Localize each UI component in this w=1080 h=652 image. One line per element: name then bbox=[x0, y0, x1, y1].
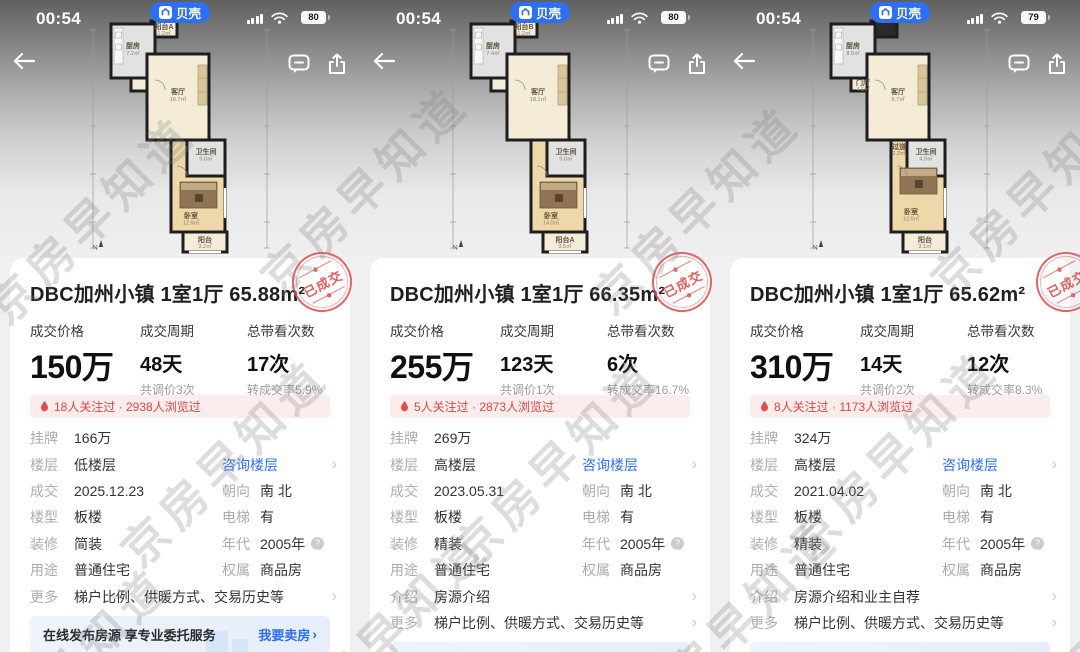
viewing-count: 6次 bbox=[607, 348, 690, 377]
svg-text:12.0㎡: 12.0㎡ bbox=[903, 215, 920, 223]
stats-row: 成交价格150万 成交周期48天共调价3次 总带看次数17次转成交率5.9% bbox=[30, 320, 330, 386]
detail-row-deal-date: 成交2025.12.23朝向南 北 bbox=[30, 478, 330, 504]
clock: 00:54 bbox=[396, 9, 441, 29]
svg-text:客厅: 客厅 bbox=[530, 87, 545, 96]
svg-text:12.9㎡: 12.9㎡ bbox=[183, 219, 200, 227]
svg-text:阳台: 阳台 bbox=[918, 235, 932, 244]
svg-text:厨房: 厨房 bbox=[126, 41, 140, 50]
detail-row-listing-price: 挂牌166万 bbox=[30, 425, 330, 451]
svg-text:阳台B: 阳台B bbox=[514, 22, 533, 31]
message-button[interactable] bbox=[288, 54, 310, 74]
detail-row-listing-price: 挂牌269万 bbox=[390, 425, 690, 451]
svg-text:卫生间: 卫生间 bbox=[196, 147, 217, 156]
beike-logo-icon bbox=[519, 6, 532, 19]
clock: 00:54 bbox=[756, 9, 801, 29]
detail-row-floor: 楼层高楼层咨询楼层 bbox=[750, 451, 1050, 477]
floorplan-image: 阳台B 1.2㎡ 厨房 7.4㎡ 客厅 18.1㎡ 卫生间 5.0㎡ 卧室 14… bbox=[445, 18, 635, 254]
attention-text: 8人关注过 · 1173人浏览过 bbox=[774, 398, 913, 415]
svg-text:阳台: 阳台 bbox=[198, 235, 212, 244]
flame-icon bbox=[400, 401, 409, 412]
compass-north-icon: N bbox=[813, 240, 823, 252]
svg-text:7.2㎡: 7.2㎡ bbox=[126, 49, 140, 57]
detail-row-building-type: 楼型板楼电梯有 bbox=[30, 504, 330, 530]
chevron-right-icon bbox=[692, 457, 697, 473]
compass-north-icon: N bbox=[93, 240, 103, 252]
svg-text:厨房: 厨房 bbox=[846, 41, 860, 50]
chevron-right-icon bbox=[1052, 615, 1057, 631]
attention-banner: 18人关注过 · 2938人浏览过 bbox=[30, 395, 330, 418]
listing-card: 已成交 DBC加州小镇 1室1厅 66.35m² 成交价格255万 成交周期12… bbox=[370, 258, 710, 652]
viewing-count: 17次 bbox=[247, 348, 330, 377]
detail-row-building-type: 楼型板楼电梯有 bbox=[750, 504, 1050, 530]
phone-screenshot-3: 厨房 8.5㎡ 客厅 9.7㎡ 卫生间 4.9㎡ 卧室 12.0㎡ 阳台 3.1… bbox=[720, 0, 1080, 652]
svg-text:1.2㎡: 1.2㎡ bbox=[517, 29, 531, 37]
cellular-signal-icon bbox=[967, 14, 984, 24]
beike-logo-icon bbox=[159, 6, 172, 19]
battery-icon: 79 bbox=[1021, 11, 1046, 24]
message-button[interactable] bbox=[648, 54, 670, 74]
svg-text:16.7㎡: 16.7㎡ bbox=[170, 95, 187, 103]
chevron-right-icon bbox=[332, 589, 337, 605]
stat-label: 总带看次数 bbox=[607, 320, 690, 340]
deal-price: 310万 bbox=[750, 342, 860, 388]
svg-text:卧室: 卧室 bbox=[184, 211, 198, 220]
floorplan-background: 阳台A 1.2㎡ 厨房 7.2㎡ 客厅 16.7㎡ 卫生间 5.0㎡ 卧室 12… bbox=[0, 0, 360, 260]
svg-text:N: N bbox=[453, 245, 458, 252]
sell-house-banner[interactable]: 在线发布房源 享专业委托服务 我要卖房 bbox=[30, 616, 330, 652]
wifi-icon bbox=[271, 12, 288, 24]
detail-row-building-type: 楼型板楼电梯有 bbox=[390, 504, 690, 530]
detail-row-usage: 用途普通住宅权属商品房 bbox=[750, 557, 1050, 583]
consult-floor-link[interactable]: 咨询楼层 bbox=[582, 455, 638, 475]
svg-text:14.0㎡: 14.0㎡ bbox=[543, 219, 560, 227]
chevron-right-icon bbox=[312, 626, 317, 642]
detail-row-deal-date: 成交2021.04.02朝向南 北 bbox=[750, 478, 1050, 504]
wifi-icon bbox=[991, 12, 1008, 24]
detail-table: 挂牌269万 楼层高楼层咨询楼层 成交2023.05.31朝向南 北 楼型板楼电… bbox=[390, 425, 690, 636]
flame-icon bbox=[40, 401, 49, 412]
svg-text:过道: 过道 bbox=[892, 142, 906, 151]
svg-text:3.1㎡: 3.1㎡ bbox=[918, 242, 932, 250]
share-button[interactable] bbox=[1047, 53, 1067, 75]
detail-row-more[interactable]: 更多梯户比例、供暖方式、交易历史等 bbox=[750, 610, 1050, 636]
svg-text:2.3㎡: 2.3㎡ bbox=[892, 149, 906, 157]
svg-text:阳台A: 阳台A bbox=[555, 235, 574, 244]
stats-row: 成交价格255万 成交周期123天共调价1次 总带看次数6次转成交率16.7% bbox=[390, 320, 690, 386]
detail-row-usage: 用途普通住宅权属商品房 bbox=[30, 557, 330, 583]
wifi-icon bbox=[631, 12, 648, 24]
stat-note: 转成交率8.3% bbox=[967, 381, 1050, 398]
stat-label: 成交价格 bbox=[390, 320, 500, 340]
svg-text:18.1㎡: 18.1㎡ bbox=[530, 95, 547, 103]
attention-text: 5人关注过 · 2873人浏览过 bbox=[414, 398, 554, 415]
share-button[interactable] bbox=[687, 53, 707, 75]
beike-badge-label: 贝壳 bbox=[896, 3, 921, 22]
stat-note: 转成交率16.7% bbox=[607, 381, 690, 398]
stat-note: 共调价1次 bbox=[500, 381, 607, 398]
deal-cycle: 123天 bbox=[500, 348, 607, 377]
attention-banner: 5人关注过 · 2873人浏览过 bbox=[390, 395, 690, 418]
svg-text:门厅: 门厅 bbox=[856, 78, 870, 87]
stat-label: 成交价格 bbox=[750, 320, 860, 340]
listing-title: DBC加州小镇 1室1厅 66.35m² bbox=[390, 278, 690, 307]
listing-card: 已成交 DBC加州小镇 1室1厅 65.88m² 成交价格150万 成交周期48… bbox=[10, 258, 350, 652]
chevron-right-icon bbox=[1052, 457, 1057, 473]
floorplan-background: 阳台B 1.2㎡ 厨房 7.4㎡ 客厅 18.1㎡ 卫生间 5.0㎡ 卧室 14… bbox=[360, 0, 720, 260]
chevron-right-icon bbox=[692, 615, 697, 631]
cellular-signal-icon bbox=[247, 14, 264, 24]
stat-note: 共调价2次 bbox=[860, 381, 967, 398]
back-button[interactable] bbox=[733, 52, 755, 70]
viewing-count: 12次 bbox=[967, 348, 1050, 377]
building-illustration bbox=[232, 639, 248, 652]
beike-badge-label: 贝壳 bbox=[176, 3, 201, 22]
detail-row-decoration: 装修简装年代2005年 bbox=[30, 531, 330, 557]
stat-label: 总带看次数 bbox=[247, 320, 330, 340]
stat-label: 成交周期 bbox=[860, 320, 967, 340]
svg-text:1.2㎡: 1.2㎡ bbox=[157, 29, 171, 37]
svg-text:卧室: 卧室 bbox=[904, 207, 918, 216]
svg-text:卧室: 卧室 bbox=[544, 211, 558, 220]
question-mark-icon[interactable] bbox=[311, 537, 324, 550]
consult-floor-link[interactable]: 咨询楼层 bbox=[942, 455, 998, 475]
phone-screenshot-1: 阳台A 1.2㎡ 厨房 7.2㎡ 客厅 16.7㎡ 卫生间 5.0㎡ 卧室 12… bbox=[0, 0, 360, 652]
detail-row-deal-date: 成交2023.05.31朝向南 北 bbox=[390, 478, 690, 504]
svg-text:卫生间: 卫生间 bbox=[916, 147, 937, 156]
svg-text:N: N bbox=[813, 245, 818, 252]
detail-row-intro[interactable]: 介绍房源介绍 bbox=[390, 583, 690, 609]
svg-text:阳台A: 阳台A bbox=[154, 22, 173, 31]
svg-text:3.5㎡: 3.5㎡ bbox=[558, 242, 572, 250]
flame-icon bbox=[760, 401, 769, 412]
beike-app-badge[interactable]: 贝壳 bbox=[150, 2, 210, 23]
battery-icon: 80 bbox=[301, 11, 326, 24]
detail-row-more[interactable]: 更多梯户比例、供暖方式、交易历史等 bbox=[30, 583, 330, 609]
question-mark-icon[interactable] bbox=[1031, 537, 1044, 550]
listing-card: 已成交 DBC加州小镇 1室1厅 65.62m² 成交价格310万 成交周期14… bbox=[730, 258, 1070, 652]
stat-label: 成交价格 bbox=[30, 320, 140, 340]
chevron-right-icon bbox=[332, 457, 337, 473]
svg-text:厨房: 厨房 bbox=[486, 41, 500, 50]
svg-text:5.0㎡: 5.0㎡ bbox=[199, 155, 213, 163]
floorplan-image: 阳台A 1.2㎡ 厨房 7.2㎡ 客厅 16.7㎡ 卫生间 5.0㎡ 卧室 12… bbox=[85, 18, 275, 254]
svg-text:3.2㎡: 3.2㎡ bbox=[198, 242, 212, 250]
detail-row-floor: 楼层高楼层咨询楼层 bbox=[390, 451, 690, 477]
detail-row-listing-price: 挂牌324万 bbox=[750, 425, 1050, 451]
beike-badge-label: 贝壳 bbox=[536, 3, 561, 22]
cellular-signal-icon bbox=[607, 14, 624, 24]
attention-banner: 8人关注过 · 1173人浏览过 bbox=[750, 395, 1050, 418]
beike-app-badge[interactable]: 贝壳 bbox=[510, 2, 570, 23]
sell-house-banner[interactable]: 在线发布房源 享专业委托服务 我要卖房 bbox=[390, 642, 690, 652]
floorplan-background: 厨房 8.5㎡ 客厅 9.7㎡ 卫生间 4.9㎡ 卧室 12.0㎡ 阳台 3.1… bbox=[720, 0, 1080, 260]
svg-text:5.0㎡: 5.0㎡ bbox=[559, 155, 573, 163]
stats-row: 成交价格310万 成交周期14天共调价2次 总带看次数12次转成交率8.3% bbox=[750, 320, 1050, 386]
listing-title: DBC加州小镇 1室1厅 65.62m² bbox=[750, 278, 1050, 307]
detail-table: 挂牌324万 楼层高楼层咨询楼层 成交2021.04.02朝向南 北 楼型板楼电… bbox=[750, 425, 1050, 636]
sell-house-link[interactable]: 我要卖房 bbox=[258, 625, 310, 644]
svg-text:卫生间: 卫生间 bbox=[556, 147, 577, 156]
detail-row-usage: 用途普通住宅权属商品房 bbox=[390, 557, 690, 583]
back-button[interactable] bbox=[373, 52, 395, 70]
svg-text:9.7㎡: 9.7㎡ bbox=[891, 95, 905, 103]
listing-title: DBC加州小镇 1室1厅 65.88m² bbox=[30, 278, 330, 307]
back-button[interactable] bbox=[13, 52, 35, 70]
compass-north-icon: N bbox=[453, 240, 463, 252]
beike-logo-icon bbox=[879, 6, 892, 19]
deal-cycle: 14天 bbox=[860, 348, 967, 377]
svg-text:客厅: 客厅 bbox=[170, 87, 185, 96]
beike-app-badge[interactable]: 贝壳 bbox=[870, 2, 930, 23]
stat-label: 成交周期 bbox=[500, 320, 607, 340]
svg-text:N: N bbox=[93, 245, 98, 252]
chevron-right-icon bbox=[692, 589, 697, 605]
stat-note: 共调价3次 bbox=[140, 381, 247, 398]
clock: 00:54 bbox=[36, 9, 81, 29]
chevron-right-icon bbox=[1052, 589, 1057, 605]
floorplan-image: 厨房 8.5㎡ 客厅 9.7㎡ 卫生间 4.9㎡ 卧室 12.0㎡ 阳台 3.1… bbox=[805, 18, 995, 254]
battery-icon: 80 bbox=[661, 11, 686, 24]
sell-house-banner[interactable]: 在线发布房源 享专业委托服务 我要卖房 bbox=[750, 642, 1050, 652]
deal-cycle: 48天 bbox=[140, 348, 247, 377]
svg-text:4.9㎡: 4.9㎡ bbox=[919, 155, 933, 163]
share-button[interactable] bbox=[327, 53, 347, 75]
deal-price: 150万 bbox=[30, 342, 140, 388]
message-button[interactable] bbox=[1008, 54, 1030, 74]
detail-row-intro[interactable]: 介绍房源介绍和业主自荐 bbox=[750, 583, 1050, 609]
svg-text:8.5㎡: 8.5㎡ bbox=[846, 49, 860, 57]
phone-screenshot-2: 阳台B 1.2㎡ 厨房 7.4㎡ 客厅 18.1㎡ 卫生间 5.0㎡ 卧室 14… bbox=[360, 0, 720, 652]
detail-row-floor: 楼层低楼层咨询楼层 bbox=[30, 451, 330, 477]
stat-note: 转成交率5.9% bbox=[247, 381, 330, 398]
svg-text:7.4㎡: 7.4㎡ bbox=[486, 49, 500, 57]
consult-floor-link[interactable]: 咨询楼层 bbox=[222, 455, 278, 475]
detail-row-decoration: 装修精装年代2005年 bbox=[750, 531, 1050, 557]
stat-label: 总带看次数 bbox=[967, 320, 1050, 340]
deal-price: 255万 bbox=[390, 342, 500, 388]
svg-text:客厅: 客厅 bbox=[890, 87, 905, 96]
sell-banner-text: 在线发布房源 享专业委托服务 bbox=[43, 625, 216, 644]
svg-text:4.1㎡: 4.1㎡ bbox=[856, 85, 870, 93]
detail-row-more[interactable]: 更多梯户比例、供暖方式、交易历史等 bbox=[390, 610, 690, 636]
attention-text: 18人关注过 · 2938人浏览过 bbox=[54, 398, 201, 415]
detail-row-decoration: 装修精装年代2005年 bbox=[390, 531, 690, 557]
question-mark-icon[interactable] bbox=[671, 537, 684, 550]
screenshot-collage: 阳台A 1.2㎡ 厨房 7.2㎡ 客厅 16.7㎡ 卫生间 5.0㎡ 卧室 12… bbox=[0, 0, 1080, 652]
stat-label: 成交周期 bbox=[140, 320, 247, 340]
detail-table: 挂牌166万 楼层低楼层咨询楼层 成交2025.12.23朝向南 北 楼型板楼电… bbox=[30, 425, 330, 610]
